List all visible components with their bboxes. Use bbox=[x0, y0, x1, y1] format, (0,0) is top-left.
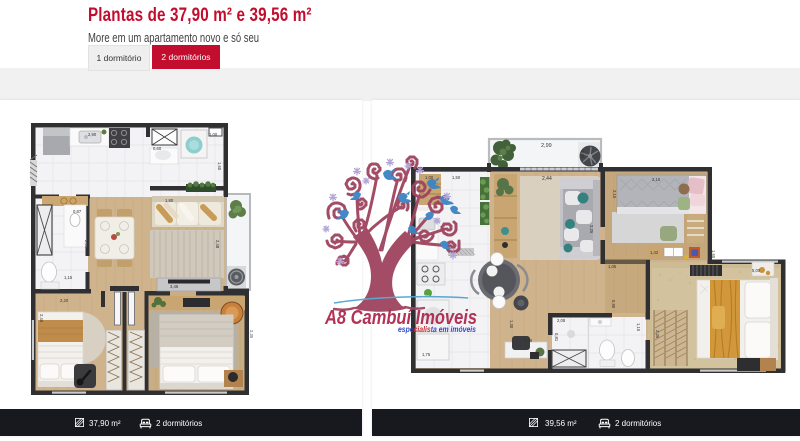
svg-text:2,15: 2,15 bbox=[612, 190, 617, 199]
svg-text:2,35: 2,35 bbox=[655, 330, 660, 339]
svg-text:1,00: 1,00 bbox=[209, 132, 218, 137]
svg-text:0,81: 0,81 bbox=[554, 333, 559, 342]
svg-text:especialista em imóveis: especialista em imóveis bbox=[398, 325, 476, 334]
svg-text:1,30: 1,30 bbox=[509, 320, 514, 329]
svg-text:2,45: 2,45 bbox=[39, 314, 44, 323]
svg-text:1,05: 1,05 bbox=[608, 264, 617, 269]
svg-text:2,48: 2,48 bbox=[215, 240, 220, 249]
svg-text:2,35: 2,35 bbox=[249, 330, 254, 339]
svg-text:1,42: 1,42 bbox=[650, 250, 659, 255]
svg-text:3,46: 3,46 bbox=[170, 284, 179, 289]
svg-text:1,60: 1,60 bbox=[217, 162, 222, 171]
svg-text:0,90: 0,90 bbox=[611, 300, 616, 309]
svg-text:1,80: 1,80 bbox=[165, 198, 174, 203]
svg-text:2,25: 2,25 bbox=[589, 225, 594, 234]
svg-text:1,50: 1,50 bbox=[452, 175, 461, 180]
svg-text:5,00: 5,00 bbox=[752, 268, 761, 273]
svg-text:2,20: 2,20 bbox=[60, 298, 69, 303]
svg-text:1,75: 1,75 bbox=[422, 352, 431, 357]
svg-text:0,60: 0,60 bbox=[153, 146, 162, 151]
svg-text:2,99: 2,99 bbox=[541, 143, 552, 149]
svg-text:1,15: 1,15 bbox=[636, 323, 641, 332]
svg-text:2,44: 2,44 bbox=[542, 176, 552, 182]
svg-text:1,15: 1,15 bbox=[64, 275, 73, 280]
svg-text:0,87: 0,87 bbox=[73, 209, 82, 214]
svg-text:2,90: 2,90 bbox=[88, 132, 97, 137]
svg-text:2,08: 2,08 bbox=[557, 318, 566, 323]
svg-text:0,65: 0,65 bbox=[580, 150, 585, 159]
svg-text:1,65: 1,65 bbox=[711, 250, 716, 259]
svg-text:1,26: 1,26 bbox=[524, 338, 533, 343]
svg-text:2,15: 2,15 bbox=[652, 177, 661, 182]
svg-text:2,08: 2,08 bbox=[84, 240, 89, 249]
